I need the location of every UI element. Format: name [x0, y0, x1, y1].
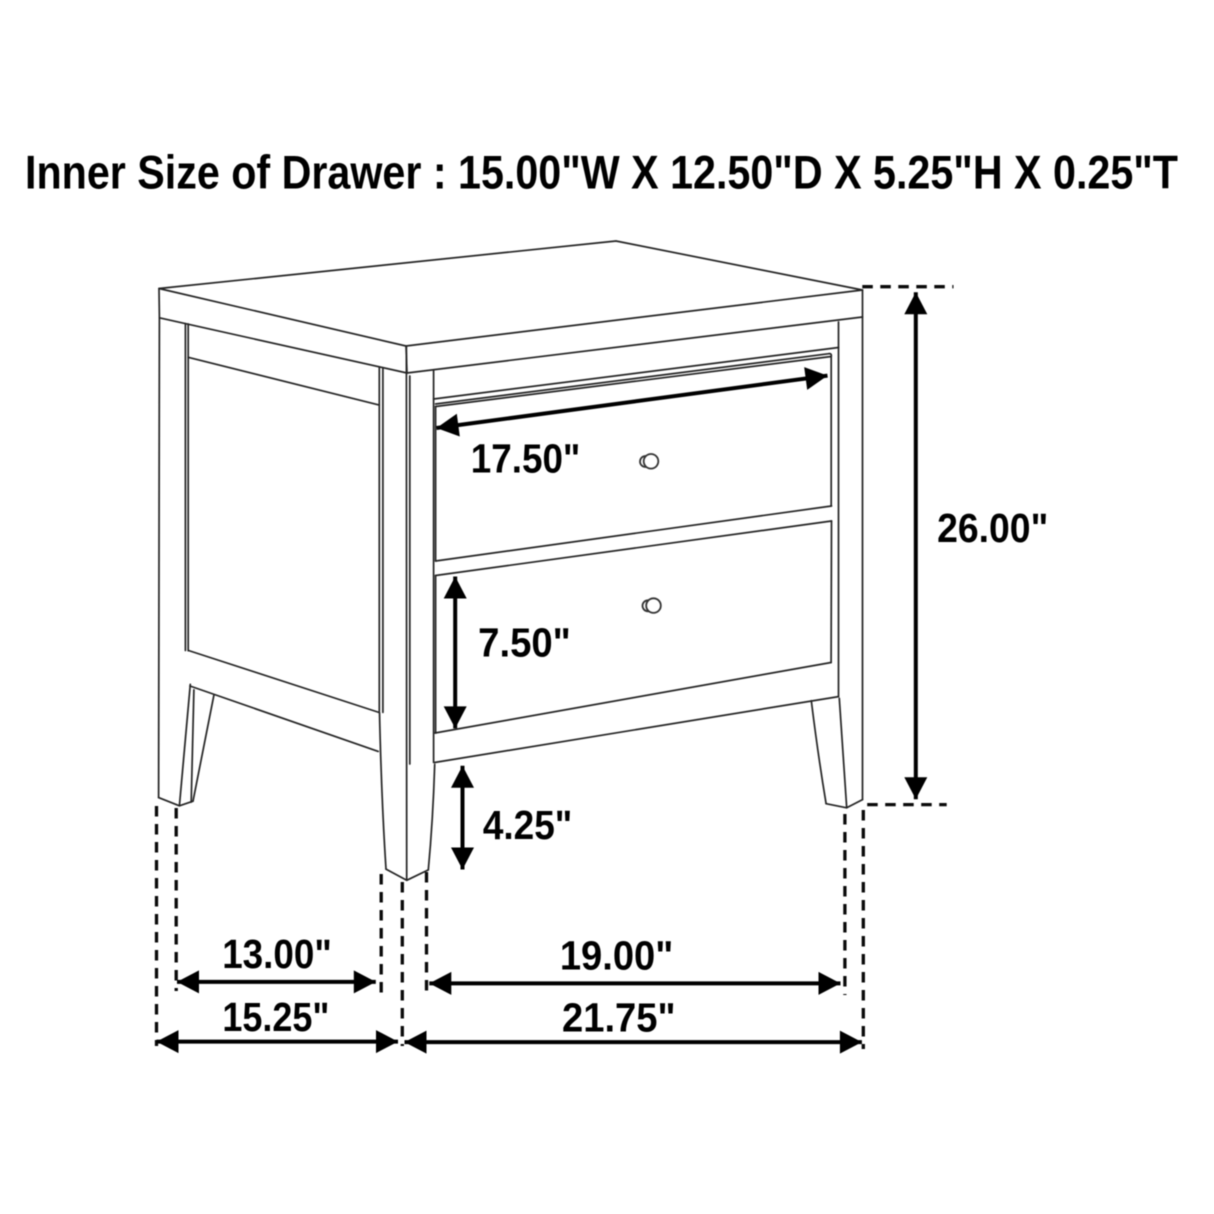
svg-text:19.00": 19.00" — [560, 932, 674, 978]
svg-text:21.75": 21.75" — [562, 994, 676, 1040]
svg-text:13.00": 13.00" — [222, 931, 332, 977]
svg-text:Inner Size of Drawer : 15.00"W: Inner Size of Drawer : 15.00"W X 12.50"D… — [25, 145, 1178, 198]
svg-text:4.25": 4.25" — [483, 802, 573, 848]
svg-text:7.50": 7.50" — [478, 619, 571, 665]
svg-text:15.25": 15.25" — [222, 994, 329, 1040]
svg-text:17.50": 17.50" — [471, 436, 581, 482]
svg-text:26.00": 26.00" — [937, 505, 1048, 551]
